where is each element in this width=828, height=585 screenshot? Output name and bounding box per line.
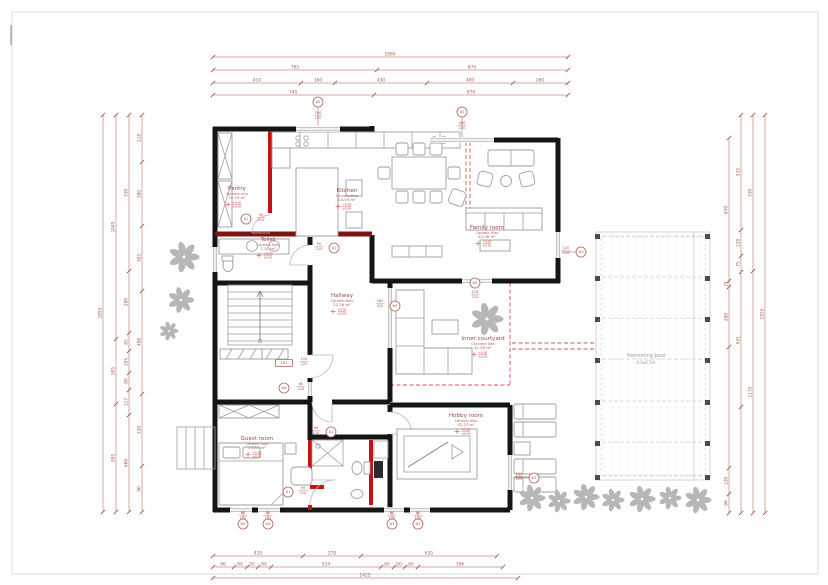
label: 305 <box>136 254 142 262</box>
label: W3 <box>531 476 536 480</box>
label: W5 <box>240 522 245 526</box>
courtyard-furniture <box>396 290 472 374</box>
plant-icon <box>471 302 504 336</box>
window-blank <box>430 137 494 143</box>
label: 210 <box>258 218 265 222</box>
dimension-chain: 1425 <box>211 572 520 580</box>
dimension-chain: 7301135 <box>747 113 755 515</box>
pool-post <box>595 441 600 446</box>
label: D1 <box>329 430 333 434</box>
dimension-chain: 1045305505 <box>110 113 118 514</box>
label: W2 <box>459 110 464 114</box>
label: 120 <box>472 290 479 294</box>
label: 210 <box>300 491 307 495</box>
label: 730 <box>747 189 753 197</box>
tv-bench <box>392 246 442 257</box>
label: D1 <box>286 490 290 494</box>
label: 535 <box>735 168 741 176</box>
label: 305 <box>110 367 116 375</box>
label: 60 <box>266 511 270 515</box>
window-blank <box>555 232 561 258</box>
label: 60 <box>416 511 420 515</box>
label: 117 <box>123 398 129 406</box>
window-blank <box>212 247 218 272</box>
nightstand <box>285 443 296 454</box>
dimension-chain: 420270635 <box>211 550 499 558</box>
opening-tag: W560120 <box>413 511 423 529</box>
dining-table <box>392 157 446 189</box>
label: 60 <box>261 561 267 567</box>
label: 60 <box>237 561 243 567</box>
label: ±0.00 <box>462 432 471 436</box>
label: 50 <box>396 561 402 567</box>
window <box>307 382 313 396</box>
label: 90 <box>723 500 729 506</box>
label: 740 <box>289 89 297 95</box>
basin <box>351 490 363 499</box>
label: 1855 <box>97 307 103 318</box>
label: 220 <box>459 126 466 130</box>
label: 120 <box>265 516 272 520</box>
label: 120 <box>723 477 729 485</box>
dimension-chain: 21830030548033890 <box>136 113 144 514</box>
label: 41.50 m² <box>474 345 492 350</box>
kitchen-island <box>296 168 338 236</box>
label: 23.81 m² <box>248 445 266 450</box>
label: ±0.00 <box>253 455 262 459</box>
window-blank <box>387 288 393 348</box>
fridge <box>272 148 290 168</box>
label: 1425 <box>360 572 371 578</box>
label: 396 <box>456 561 464 567</box>
wardrobe <box>219 405 279 418</box>
plant-icon <box>601 488 624 512</box>
window-blank <box>307 382 313 396</box>
label: 631 <box>735 336 741 344</box>
room-label: KitchenCeramic tiles24.49 m²+0.00±0.00 <box>336 188 359 211</box>
label: 80 <box>123 378 129 384</box>
label: 290 <box>123 298 129 306</box>
pool-name: Swimming pool <box>627 353 665 359</box>
label: 220 <box>563 251 570 255</box>
label: ±0.00 <box>343 207 352 211</box>
window <box>507 455 513 490</box>
label: 420 <box>254 550 262 556</box>
pool-post <box>705 276 710 281</box>
label: 160 <box>314 77 322 83</box>
courtyard-table <box>432 320 458 334</box>
pool-post <box>595 317 600 322</box>
label: 870 <box>468 64 476 70</box>
label: 210 <box>316 247 323 251</box>
label: 280 <box>377 299 384 303</box>
label: 7.31 m² <box>260 246 276 251</box>
label: ±0.00 <box>483 244 492 248</box>
pool-post <box>705 317 710 322</box>
plant-icon <box>685 486 712 514</box>
armchair <box>291 467 312 485</box>
pool-post <box>705 400 710 405</box>
opening-tag: D190210 <box>283 486 308 497</box>
window <box>430 137 494 143</box>
dimension-chain: 53512075631 <box>735 113 743 515</box>
drawing-sheet: 1660765870410160430400260740870420270635… <box>0 0 828 585</box>
bathroom-fixtures <box>312 440 388 499</box>
window-blank <box>507 455 513 490</box>
label: 120 <box>389 516 396 520</box>
label: 430 <box>377 77 385 83</box>
label: 300 <box>136 190 142 198</box>
dimension-chain: 7302908510580117460 <box>123 113 131 514</box>
label: ±0.00 <box>233 205 242 209</box>
label: 100 <box>301 357 308 361</box>
plant-icon <box>159 321 178 341</box>
dimension-chain: 740870 <box>211 89 570 97</box>
label: ED1 <box>281 361 288 365</box>
window <box>296 126 340 132</box>
dimension-chain: 1855 <box>759 113 767 515</box>
label: 220 <box>377 304 384 308</box>
label: 105 <box>123 358 129 366</box>
label: W5 <box>265 522 270 526</box>
window-blank <box>296 126 340 132</box>
label: 60 <box>299 382 303 386</box>
label: 120 <box>240 516 247 520</box>
label: 60 <box>390 511 394 515</box>
label: 60 <box>408 561 414 567</box>
opening-tag: W560120 <box>238 511 248 529</box>
label: 635 <box>425 550 433 556</box>
opening-tag: W4120220 <box>470 278 480 299</box>
label: W4 <box>472 281 477 285</box>
label: 25 <box>723 281 729 287</box>
label: 338 <box>136 426 142 434</box>
dimension-chain: 765870 <box>211 64 570 72</box>
label: 410 <box>253 77 261 83</box>
room-label: HallwayCeramic tiles22.28 m²+0.00±0.00 <box>331 293 354 316</box>
pantry-shelving <box>218 133 232 227</box>
entrance-bench <box>220 349 288 359</box>
plant-icon <box>169 241 200 273</box>
label: W5 <box>415 522 420 526</box>
pool-post <box>595 276 600 281</box>
label: ±0.00 <box>479 355 488 359</box>
opening-tag: W3120220 <box>561 246 586 257</box>
washer <box>374 461 383 478</box>
label: 22.28 m² <box>333 302 351 307</box>
label: 12.19 m² <box>228 195 246 200</box>
opening-tag: W560120 <box>263 511 273 529</box>
pool-post <box>705 358 710 363</box>
label: W5 <box>389 522 394 526</box>
label: 280 <box>723 313 729 321</box>
label: 24.49 m² <box>338 197 356 202</box>
pool-post <box>705 234 710 239</box>
hobby-room-furniture <box>397 429 477 479</box>
plant-icon <box>573 483 600 511</box>
label: 90 <box>314 426 318 430</box>
label: 120 <box>516 472 523 476</box>
label: W3 <box>578 250 583 254</box>
label: 220 <box>472 295 479 299</box>
label: 50 <box>249 561 255 567</box>
label: 120 <box>415 516 422 520</box>
dimension-chain: 410160430400260 <box>211 77 570 85</box>
label: D1 <box>332 246 336 250</box>
label: W4 <box>392 304 397 308</box>
label: 505 <box>110 454 116 462</box>
label: 765 <box>291 64 299 70</box>
opening-tag: W560120 <box>387 511 397 529</box>
label: 120 <box>563 246 570 250</box>
label: 96 <box>220 561 226 567</box>
pool-post <box>595 400 600 405</box>
label: ±0.00 <box>264 256 273 260</box>
label: 210 <box>313 431 320 435</box>
guest-room-furniture <box>219 405 312 505</box>
label: 218 <box>136 134 142 142</box>
window <box>212 247 218 272</box>
label: 200 <box>516 477 523 481</box>
wc <box>352 462 362 475</box>
label: 514 <box>322 561 330 567</box>
label: 220 <box>315 116 322 120</box>
label: 52.96 m² <box>478 234 496 239</box>
label: 120 <box>735 239 741 247</box>
label: 400 <box>466 77 474 83</box>
label: 85 <box>123 339 129 345</box>
stairs <box>228 285 292 345</box>
label: 60 <box>241 511 245 515</box>
window <box>555 232 561 258</box>
dimension-chain: 96605060514605060396 <box>211 561 505 569</box>
label: W1 <box>315 100 320 104</box>
label: 670 <box>723 206 729 214</box>
plant-icon <box>547 489 570 513</box>
label: 260 <box>536 77 544 83</box>
plant-icon <box>168 287 194 314</box>
label: D1 <box>244 217 248 221</box>
label: 90 <box>301 486 305 490</box>
window <box>387 288 393 348</box>
label: 1135 <box>747 386 753 397</box>
opening-tag: W660120 <box>279 382 306 393</box>
label: 90 <box>317 242 321 246</box>
label: 120 <box>298 387 305 391</box>
pool-post <box>595 234 600 239</box>
label: 1855 <box>759 308 765 319</box>
label: 90 <box>259 213 263 217</box>
pool-post <box>705 475 710 480</box>
opening-tag: D190210 <box>241 213 266 224</box>
label: 220 <box>301 362 308 366</box>
plant-icon <box>658 486 681 510</box>
label: W6 <box>281 386 286 390</box>
dimension-chain: 1855 <box>97 113 105 514</box>
label: 75 <box>735 261 741 267</box>
dimension-chain: 6702528012090 <box>723 136 731 515</box>
pool-post <box>705 441 710 446</box>
pool-post <box>595 475 600 480</box>
label: 730 <box>123 189 129 197</box>
billiard-table <box>397 429 477 479</box>
label: 460 <box>123 459 129 467</box>
opening-tag: D190210 <box>315 242 340 253</box>
pool-post <box>595 358 600 363</box>
label: 160 <box>315 111 322 115</box>
label: 32.27 m² <box>457 422 475 427</box>
dimension-chain: 1660 <box>211 51 570 59</box>
label: 1660 <box>385 51 396 57</box>
label: 400 <box>459 121 466 125</box>
level-marker-icon <box>331 309 336 314</box>
pool-size: 4.0x8.5m <box>637 360 656 365</box>
label: 90 <box>136 486 142 492</box>
label: 270 <box>328 550 336 556</box>
label: ±0.00 <box>338 312 347 316</box>
label: 60 <box>384 561 390 567</box>
label: 1045 <box>110 221 116 232</box>
family-room-furniture <box>378 143 542 257</box>
exterior-steps <box>177 427 215 469</box>
opening-tag: W1160220 <box>313 97 323 126</box>
floor-plan-svg: 1660765870410160430400260740870420270635… <box>0 0 828 585</box>
label: 480 <box>136 338 142 346</box>
plant-icon <box>629 485 656 513</box>
label: 870 <box>467 89 475 95</box>
